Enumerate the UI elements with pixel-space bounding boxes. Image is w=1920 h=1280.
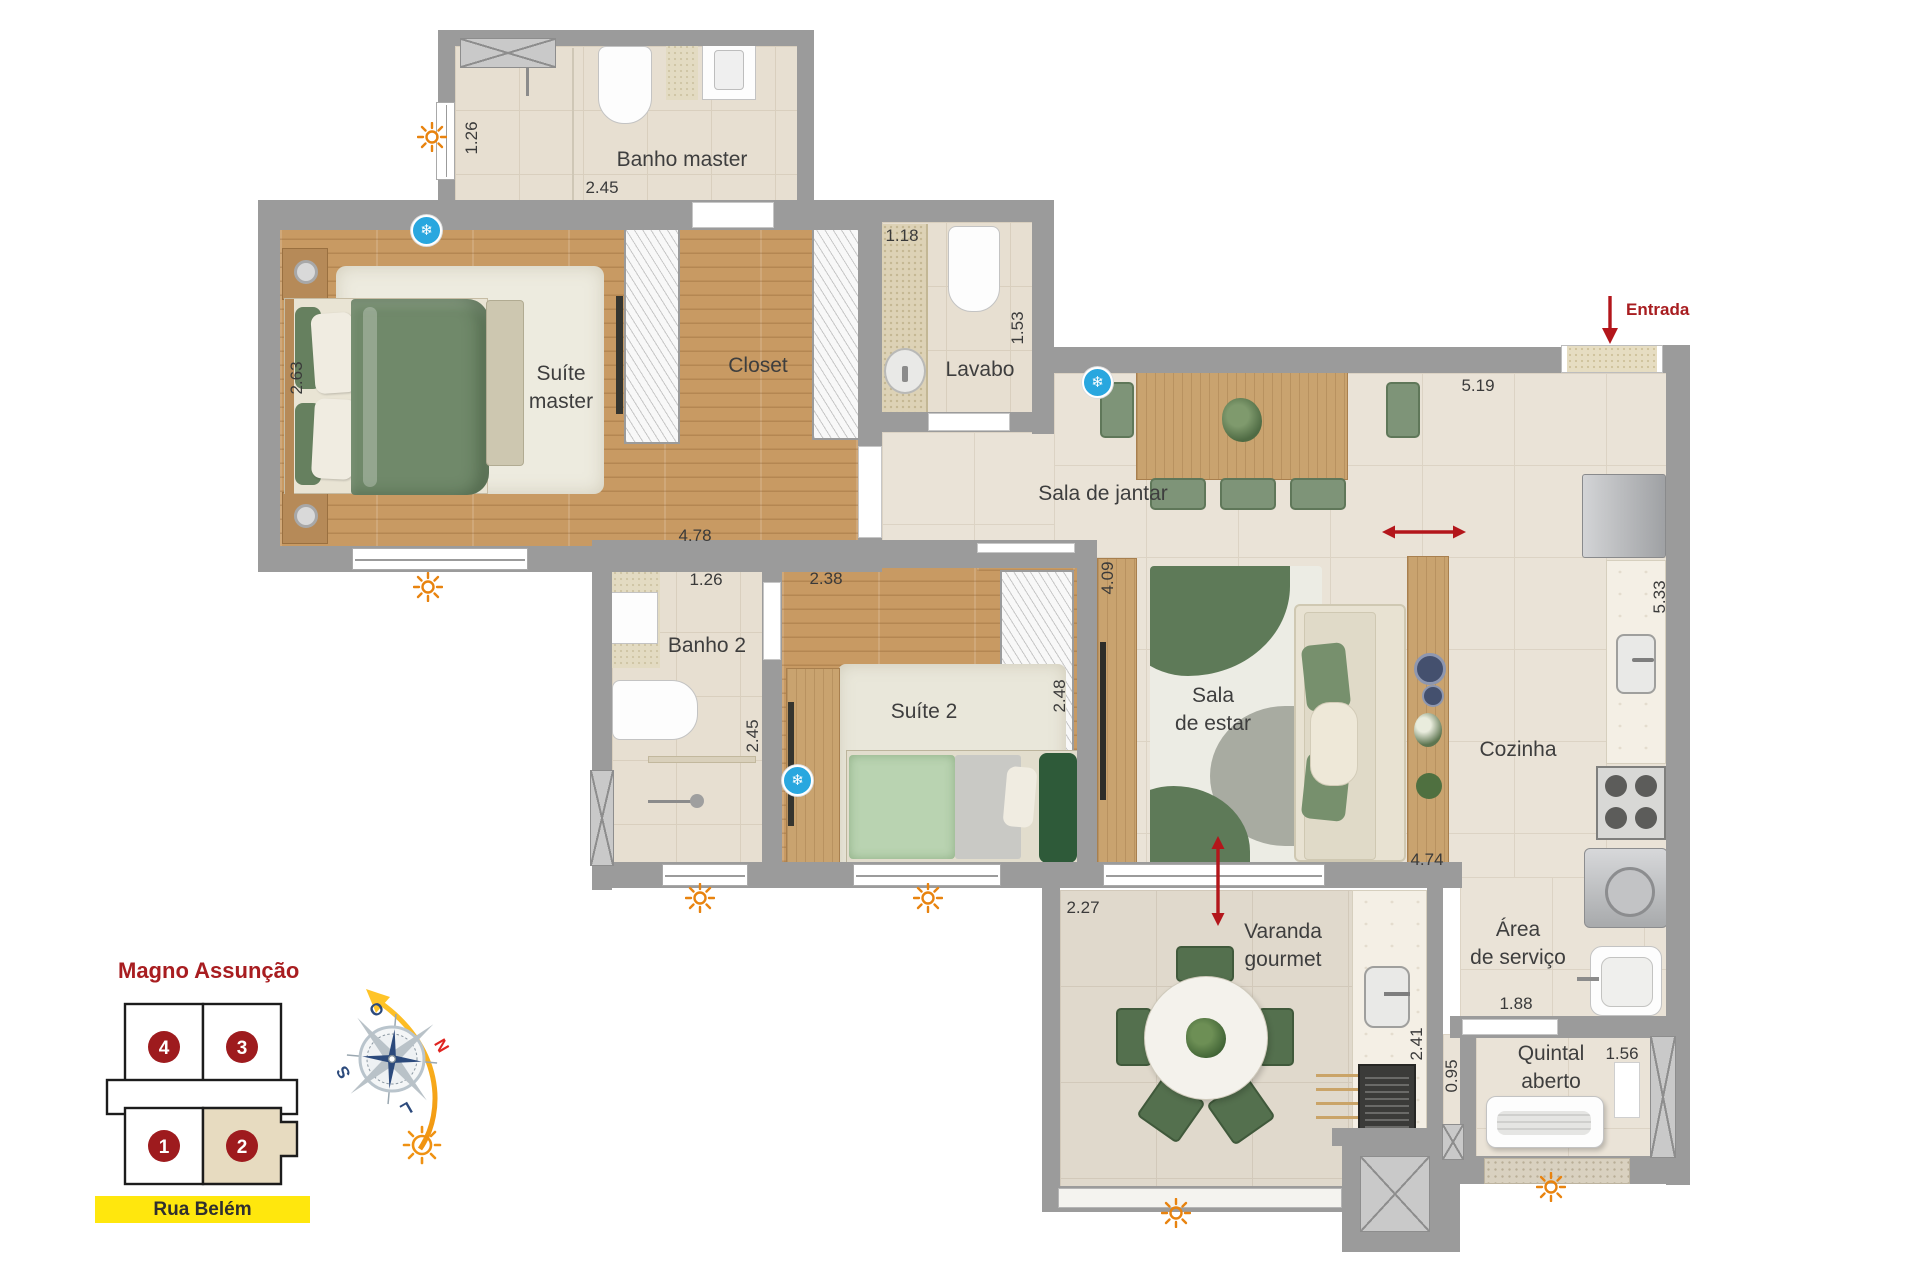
room-label-varanda: Varanda gourmet (1244, 918, 1322, 973)
burner-4 (1635, 807, 1657, 829)
wall (1032, 347, 1564, 373)
banho2-toilet (612, 680, 698, 740)
sun-icon (685, 883, 715, 913)
washer-drum (1605, 867, 1655, 917)
room-label-suite2: Suíte 2 (891, 698, 958, 726)
skewer-2 (1316, 1088, 1358, 1091)
svg-text:3: 3 (237, 1038, 248, 1059)
floor-plan: ❄ ❄ ❄ Banho master Suíte master Closet L… (0, 0, 1920, 1280)
lavabo-toilet (948, 226, 1000, 312)
entrance-door (1562, 346, 1662, 372)
compass-east-label: L (397, 1098, 415, 1120)
room-label-line: Quintal (1518, 1040, 1585, 1068)
dining-chair-b3 (1290, 478, 1346, 510)
room-label-lavabo: Lavabo (946, 356, 1015, 384)
dim-estar-h: 4.09 (1098, 561, 1118, 594)
quintal-ac-unit (1614, 1062, 1640, 1118)
lamp-bottom (294, 504, 318, 528)
closet-wardrobe-right (812, 226, 862, 440)
bed-master (284, 298, 488, 494)
grill (1358, 1064, 1416, 1134)
estar-console (1407, 556, 1449, 874)
door-suite-master (858, 446, 882, 538)
decor-plate-2 (1422, 685, 1444, 707)
dim-lavabo-h: 1.53 (1008, 311, 1028, 344)
bed-bench (486, 300, 524, 466)
flow-arrow-horizontal-icon (1382, 522, 1466, 542)
shaft-banho2 (590, 770, 614, 866)
duvet-fold (363, 307, 377, 487)
entrance-label: Entrada (1626, 300, 1689, 320)
svg-text:4: 4 (159, 1038, 170, 1059)
dim-banho-master-h: 1.26 (462, 121, 482, 154)
estar-rug-green-top (1150, 566, 1290, 676)
room-label-line: Área (1470, 916, 1566, 944)
air-conditioning-icon: ❄ (1082, 367, 1113, 398)
sink-master-basin (714, 50, 744, 90)
flow-arrow-vertical-icon (1208, 836, 1228, 926)
varanda-table-plant (1186, 1018, 1226, 1058)
closet-wardrobe-left (624, 228, 680, 444)
door-banho-master (692, 202, 774, 228)
estar-tv (1100, 642, 1106, 800)
bench-slats (1497, 1111, 1591, 1135)
keyplan-building: 4 3 1 2 (85, 990, 317, 1190)
varanda-glass-rail (1058, 1188, 1342, 1208)
dim-banho2-w: 1.26 (689, 570, 722, 590)
sofa-chaise (1310, 702, 1358, 786)
room-label-cozinha: Cozinha (1479, 736, 1556, 764)
room-label-banho2: Banho 2 (668, 632, 746, 660)
varanda-faucet (1384, 992, 1410, 996)
suite2-blanket (849, 755, 955, 859)
room-label-sala-estar: Sala de estar (1175, 682, 1251, 737)
wall (1077, 540, 1097, 888)
grill-grate (1365, 1072, 1409, 1128)
elevator-shaft (1360, 1156, 1430, 1232)
decor-plate-1 (1414, 653, 1446, 685)
wall (258, 200, 280, 572)
svg-text:2: 2 (237, 1137, 248, 1158)
air-conditioning-icon: ❄ (782, 765, 813, 796)
banho2-shower-bar (648, 800, 694, 803)
wall (1032, 200, 1054, 434)
decor-plant (1416, 773, 1442, 799)
suite2-bed (846, 750, 1078, 864)
stove (1596, 766, 1666, 840)
tub-faucet (1577, 977, 1599, 981)
headboard (285, 299, 294, 495)
svg-text:1: 1 (159, 1137, 170, 1158)
dim-servico-door-w: 1.88 (1499, 994, 1532, 1014)
dim-corridor-w: 0.95 (1442, 1059, 1462, 1092)
dim-cozinha-h: 5.33 (1650, 580, 1670, 613)
compass-north-label: N (430, 1036, 453, 1056)
room-label-line: aberto (1518, 1068, 1585, 1096)
keyplan-title: Magno Assunção (118, 958, 299, 984)
room-label-sala-jantar: Sala de jantar (1038, 480, 1168, 508)
kitchen-faucet (1632, 658, 1654, 662)
door-banho2 (763, 582, 781, 660)
washing-machine (1584, 848, 1668, 928)
dim-estar-w: 4.74 (1410, 850, 1443, 870)
decor-flowers (1414, 713, 1442, 747)
wall (1042, 877, 1060, 1212)
toilet-master (598, 46, 652, 124)
compass-rose-icon: O N S L (330, 983, 460, 1183)
room-label-banho-master: Banho master (617, 146, 748, 174)
room-label-line: Suíte (529, 360, 593, 388)
suite2-pillow-green (1039, 753, 1077, 863)
entrance-arrow-icon (1598, 294, 1622, 344)
sun-icon (913, 883, 943, 913)
shower-divider (572, 48, 574, 200)
room-label-quintal: Quintal aberto (1518, 1040, 1585, 1095)
sofa (1294, 604, 1406, 862)
dim-varanda-counter-h: 2.41 (1407, 1027, 1427, 1060)
sun-icon (417, 122, 447, 152)
room-label-line: de estar (1175, 710, 1251, 738)
lavabo-faucet (902, 366, 908, 382)
room-label-area-servico: Área de serviço (1470, 916, 1566, 971)
fridge (1582, 474, 1666, 558)
dim-lavabo-w: 1.18 (885, 226, 918, 246)
window-suite-master (352, 548, 528, 570)
air-conditioning-icon: ❄ (411, 215, 442, 246)
dim-suite2-h: 2.48 (1050, 679, 1070, 712)
dining-chair-b2 (1220, 478, 1276, 510)
shaft-quintal (1650, 1036, 1676, 1158)
bath-mat (666, 44, 698, 100)
dining-centerpiece (1222, 398, 1262, 442)
kitchen-sink (1616, 634, 1656, 694)
dim-suite2-w: 2.38 (809, 569, 842, 589)
dim-quintal-w: 1.56 (1605, 1044, 1638, 1064)
skewer-4 (1316, 1116, 1358, 1119)
shaft-banho-master (460, 38, 556, 68)
door-suite2 (977, 543, 1075, 553)
dim-jantar-w: 5.19 (1461, 376, 1494, 396)
sun-icon (413, 572, 443, 602)
room-label-line: master (529, 388, 593, 416)
wall (882, 200, 1054, 222)
lamp-top (294, 260, 318, 284)
suite2-tv (788, 702, 794, 826)
skewer-1 (1316, 1074, 1358, 1077)
room-label-line: Sala (1175, 682, 1251, 710)
door-lavabo (928, 413, 1010, 431)
wall (258, 200, 882, 230)
banho2-shower-head (690, 794, 704, 808)
burner-1 (1605, 775, 1627, 797)
room-label-line: de serviço (1470, 944, 1566, 972)
varanda-sink (1364, 966, 1410, 1028)
dim-suite-master-h: 2.63 (287, 361, 307, 394)
compass-rose (330, 983, 460, 1135)
dim-banho-master-w: 2.45 (585, 178, 618, 198)
suite2-pillow-white (1002, 766, 1037, 828)
wall (797, 30, 814, 202)
banho2-shelf (648, 756, 756, 763)
closet-tv (616, 296, 623, 414)
laundry-tub (1590, 946, 1662, 1016)
room-label-line: gourmet (1244, 946, 1322, 974)
dim-suite-master-w: 4.78 (678, 526, 711, 546)
dining-chair-right (1386, 382, 1420, 438)
dim-varanda-w: 2.27 (1066, 898, 1099, 918)
room-label-suite-master: Suíte master (529, 360, 593, 415)
banho2-sink (610, 592, 658, 644)
sun-icon (1536, 1172, 1566, 1202)
dim-banho2-h: 2.45 (743, 719, 763, 752)
compass-south-label: S (333, 1063, 355, 1082)
burner-2 (1635, 775, 1657, 797)
room-label-closet: Closet (728, 352, 788, 380)
skewer-3 (1316, 1102, 1358, 1105)
shaft-corridor (1442, 1124, 1464, 1160)
tub-basin (1601, 957, 1653, 1007)
wall (858, 200, 882, 450)
sun-icon (1161, 1198, 1191, 1228)
street-bar: Rua Belém (95, 1196, 310, 1223)
door-servico-quintal (1462, 1019, 1558, 1035)
quintal-bench (1486, 1096, 1604, 1148)
burner-3 (1605, 807, 1627, 829)
street-label: Rua Belém (153, 1199, 251, 1220)
room-label-line: Varanda (1244, 918, 1322, 946)
wall (1427, 877, 1443, 1132)
